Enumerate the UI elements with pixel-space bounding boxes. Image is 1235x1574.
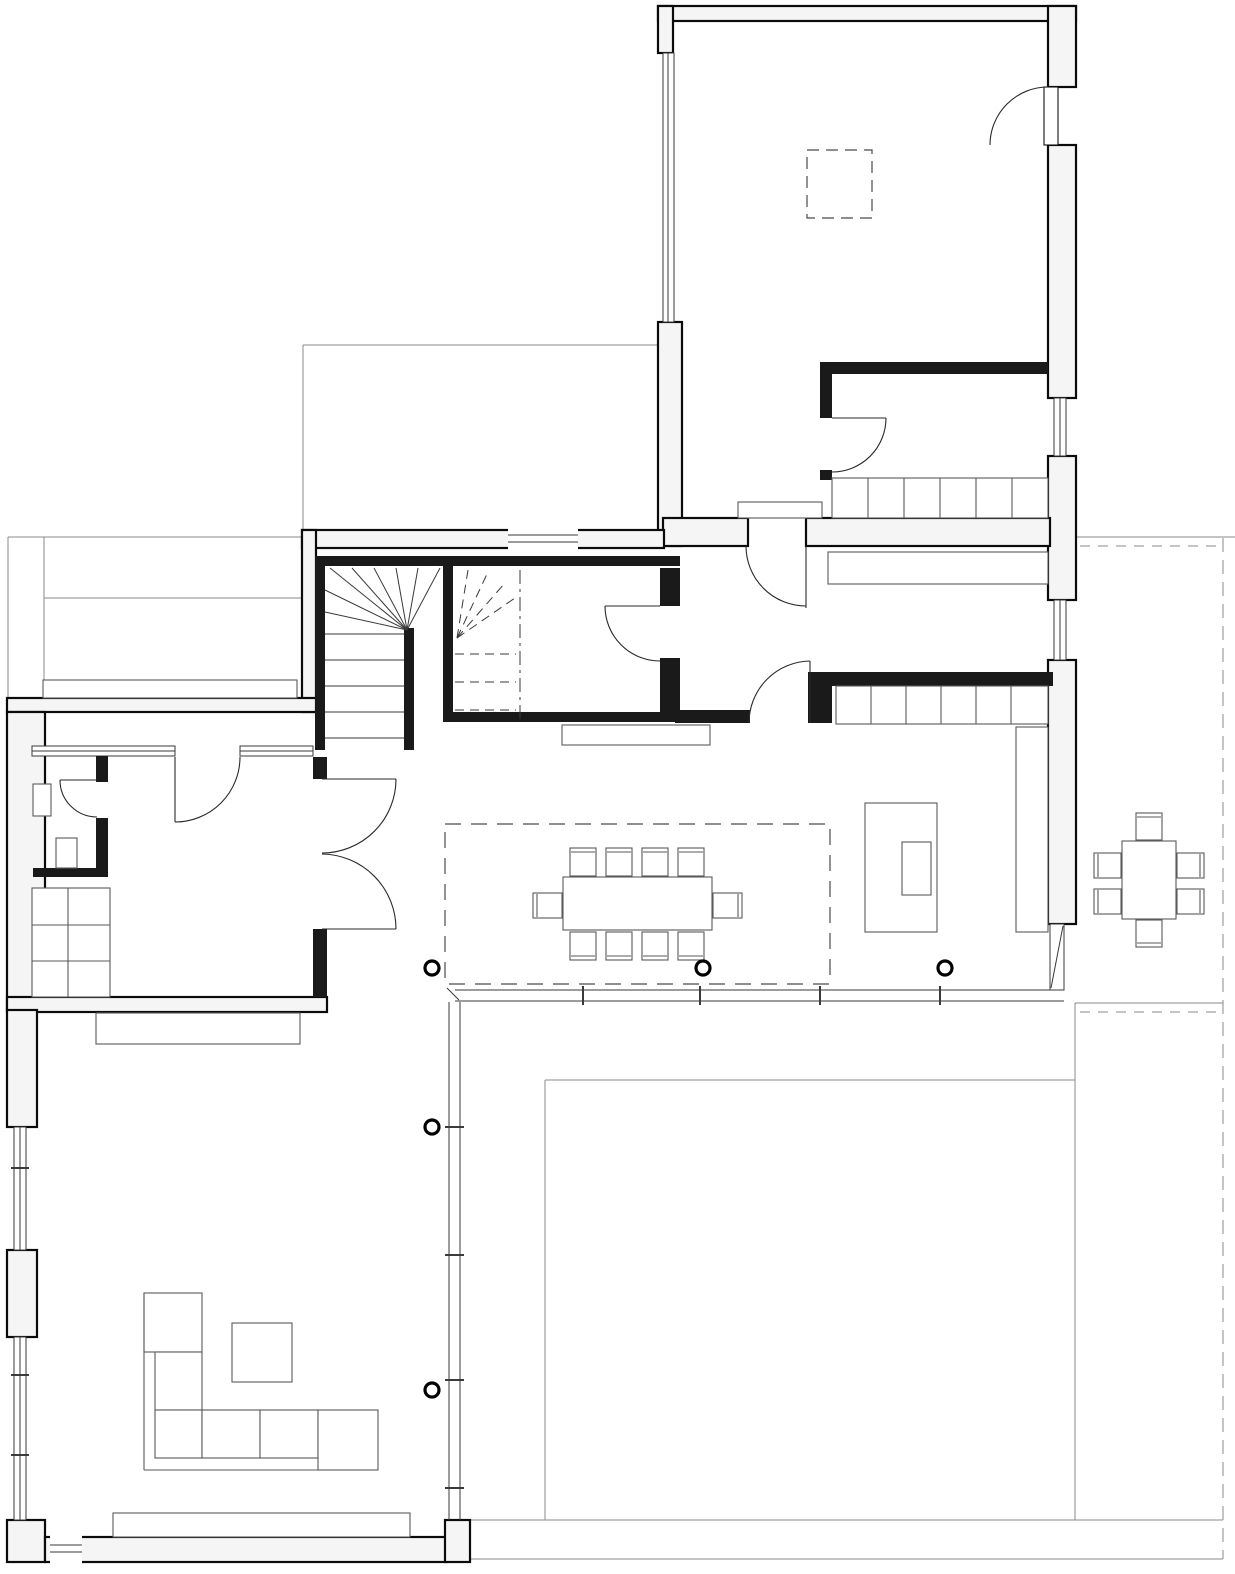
- wall-office-east-lower: [313, 929, 327, 997]
- wall-utility-west-upper: [820, 362, 832, 418]
- column-4: [425, 1120, 439, 1134]
- sofa-module-seat-1: [202, 1410, 260, 1458]
- wall-west-seg-2: [7, 1250, 37, 1337]
- wall-hall-south: [675, 710, 750, 723]
- wall-storage-bottom: [443, 712, 680, 722]
- door-wc-swing: [60, 780, 97, 817]
- door-storage-swing: [605, 606, 660, 661]
- corridor-shelf: [828, 552, 1048, 584]
- wall-hall-top: [302, 530, 664, 548]
- sofa-module-left: [155, 1352, 202, 1410]
- kitchen-island-sink: [902, 842, 931, 895]
- door-hall-south-swing: [749, 661, 810, 723]
- wall-vestibule-bottom: [663, 518, 748, 546]
- stair-winder-8: [325, 612, 407, 630]
- wall-utility-bottom: [806, 518, 1050, 546]
- wall-facade-corner-block: [445, 1520, 470, 1562]
- stair-winder-6: [407, 568, 440, 630]
- door-french-upper-swing: [322, 779, 396, 853]
- wall-west-seg-1: [7, 1010, 37, 1127]
- floor-plan-svg: [0, 0, 1235, 1574]
- wall-stair-inner: [404, 628, 414, 750]
- wall-kitchen-north: [832, 672, 1053, 686]
- opening-hall-window: [508, 528, 578, 550]
- column-5: [425, 1383, 439, 1397]
- tv-lowboard: [113, 1513, 410, 1537]
- skylight-garage-dashed: [807, 150, 872, 218]
- door-garage-panel: [1044, 87, 1058, 145]
- dining-sideboard: [96, 1013, 300, 1044]
- column-2: [696, 961, 710, 975]
- patio-table: [1122, 841, 1176, 919]
- door-garage-swing: [990, 87, 1048, 145]
- wall-wc-partition-horizontal: [33, 868, 96, 877]
- column-1: [425, 961, 439, 975]
- wall-stair-west: [315, 556, 325, 750]
- sofa-module-back-top: [144, 1293, 202, 1352]
- stair-dashed-winder-4: [457, 598, 515, 638]
- entry-threshold: [738, 502, 822, 518]
- wall-garage-topleft-stub: [658, 6, 673, 53]
- wall-court-south: [7, 698, 316, 712]
- sofa-module-corner: [155, 1410, 202, 1458]
- sofa-module-seat-2: [260, 1410, 318, 1458]
- wall-garage-utility: [820, 362, 1048, 374]
- kitchen-tall-cabinet: [1016, 727, 1048, 932]
- columns: [425, 961, 952, 1397]
- wall-utility-west-stub: [820, 470, 832, 480]
- kitchen-counter: [836, 686, 1048, 724]
- wall-wc-partition-vertical: [96, 818, 108, 877]
- wall-east-4: [1048, 660, 1076, 924]
- wall-office-east-upper: [313, 757, 327, 779]
- wall-garage-left-lower: [658, 322, 682, 546]
- stair-winder-7: [325, 590, 407, 630]
- wc-toilet: [56, 838, 77, 868]
- court-bench: [43, 680, 297, 698]
- stair-dashed-winder-2: [457, 574, 487, 638]
- floor-plan: [0, 0, 1235, 1574]
- wall-east-2: [1048, 145, 1076, 398]
- door-french-lower-swing: [322, 854, 396, 929]
- wall-living-bottom: [45, 1537, 447, 1562]
- dining-table: [563, 877, 712, 930]
- wall-stair-top: [315, 556, 680, 566]
- wc-sink: [33, 784, 51, 816]
- stair-dashed-winder-1: [457, 570, 468, 638]
- wall-wc-pier: [96, 756, 108, 782]
- wall-east-3: [1048, 456, 1076, 600]
- wall-southwest-corner: [7, 1520, 45, 1562]
- wall-east-1: [1048, 6, 1076, 87]
- door-utility-swing: [832, 418, 886, 472]
- wall-hall-corner-block: [808, 672, 832, 723]
- coffee-table: [232, 1323, 292, 1382]
- opening-bottom-window: [50, 1535, 82, 1564]
- hall-sideboard: [562, 725, 710, 745]
- wall-garage-top: [658, 6, 1076, 21]
- door-entry-swing: [746, 546, 806, 606]
- door-office-swing: [175, 757, 240, 822]
- wall-office-bottom: [7, 997, 327, 1012]
- wall-stair-divider: [443, 556, 453, 722]
- wall-storage-east-upper: [660, 568, 680, 606]
- sofa-module-chaise: [318, 1410, 378, 1470]
- column-3: [938, 961, 952, 975]
- wall-hall-west: [302, 530, 316, 712]
- stair-winder-1: [330, 568, 407, 630]
- office-cabinet: [32, 888, 110, 997]
